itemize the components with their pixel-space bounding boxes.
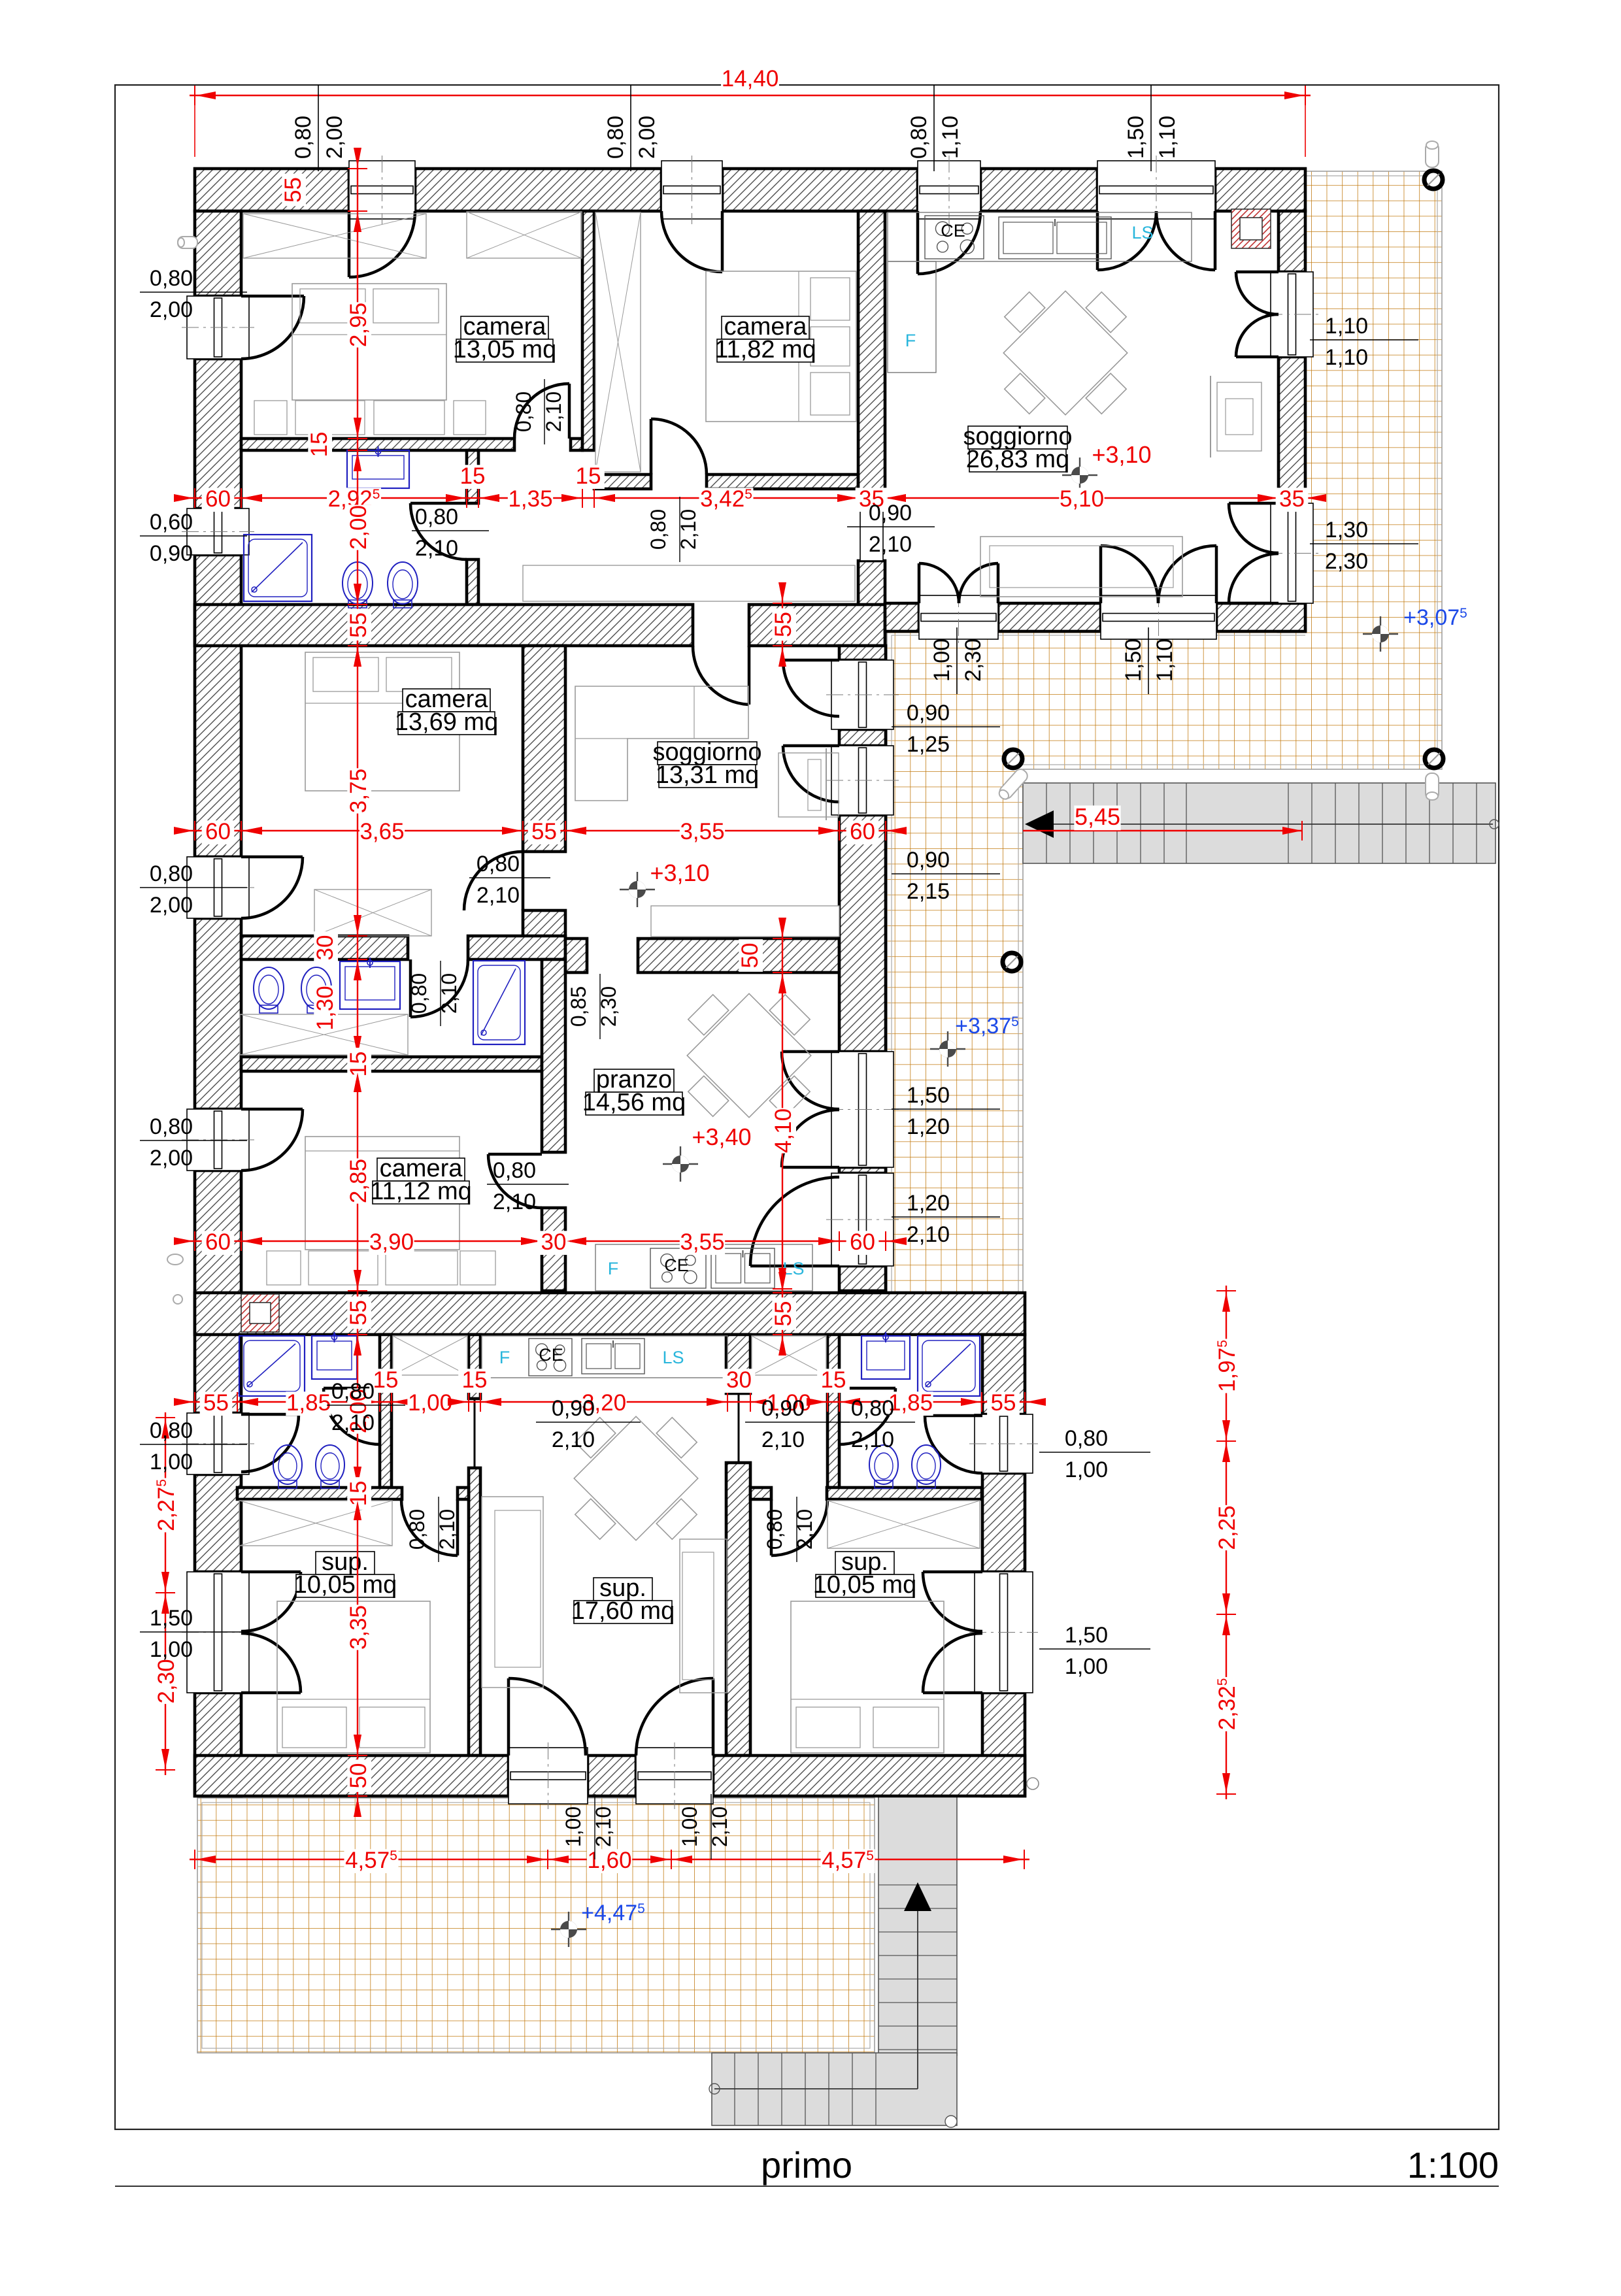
svg-text:0,85: 0,85 <box>567 986 590 1027</box>
svg-text:5,10: 5,10 <box>1060 486 1104 512</box>
svg-text:15: 15 <box>346 1481 371 1506</box>
svg-text:CE: CE <box>539 1345 563 1365</box>
svg-text:2,10: 2,10 <box>761 1427 805 1452</box>
svg-text:1,975: 1,975 <box>1214 1340 1240 1392</box>
svg-text:CE: CE <box>664 1256 689 1275</box>
svg-text:2,10: 2,10 <box>493 1190 536 1214</box>
svg-text:0,90: 0,90 <box>907 848 950 873</box>
svg-text:55: 55 <box>531 819 557 844</box>
svg-text:3,55: 3,55 <box>680 1229 724 1255</box>
svg-text:15: 15 <box>460 463 486 489</box>
svg-text:13,05 mq: 13,05 mq <box>453 336 556 363</box>
svg-text:60: 60 <box>205 1229 231 1255</box>
svg-text:30: 30 <box>726 1367 752 1393</box>
svg-text:0,80: 0,80 <box>150 1418 193 1443</box>
svg-text:60: 60 <box>850 1229 875 1255</box>
svg-text:15: 15 <box>373 1367 399 1393</box>
svg-text:3,75: 3,75 <box>346 769 371 813</box>
svg-text:55: 55 <box>346 612 371 638</box>
svg-text:55: 55 <box>771 612 796 637</box>
svg-text:1,50: 1,50 <box>1065 1623 1108 1648</box>
svg-text:2,00: 2,00 <box>322 116 347 159</box>
svg-text:1,10: 1,10 <box>1325 314 1368 339</box>
svg-text:35: 35 <box>1279 486 1305 512</box>
svg-text:1,85: 1,85 <box>286 1390 331 1416</box>
svg-text:1,00: 1,00 <box>561 1806 585 1847</box>
svg-text:F: F <box>905 331 916 350</box>
svg-text:1,25: 1,25 <box>907 732 950 757</box>
svg-text:0,80: 0,80 <box>512 391 535 432</box>
svg-text:0,80: 0,80 <box>407 973 431 1014</box>
svg-text:0,80: 0,80 <box>1065 1426 1108 1451</box>
svg-text:2,10: 2,10 <box>851 1427 894 1452</box>
svg-text:0,80: 0,80 <box>415 505 458 529</box>
svg-text:1,00: 1,00 <box>150 1450 193 1474</box>
svg-text:2,10: 2,10 <box>476 883 520 908</box>
svg-text:3,55: 3,55 <box>680 819 724 844</box>
svg-text:1,30: 1,30 <box>1325 518 1368 542</box>
svg-text:1,85: 1,85 <box>888 1390 933 1416</box>
svg-text:15: 15 <box>462 1367 488 1393</box>
svg-text:11,12 mq: 11,12 mq <box>370 1178 472 1205</box>
svg-text:3,65: 3,65 <box>359 819 404 844</box>
svg-text:+3,10: +3,10 <box>1092 441 1151 468</box>
svg-text:1,10: 1,10 <box>1152 639 1177 682</box>
svg-text:15: 15 <box>576 463 601 489</box>
svg-text:60: 60 <box>205 486 231 512</box>
svg-text:2,10: 2,10 <box>415 536 458 561</box>
svg-text:2,10: 2,10 <box>331 1410 375 1435</box>
svg-text:4,10: 4,10 <box>771 1108 796 1153</box>
svg-text:26,83 mq: 26,83 mq <box>966 446 1069 473</box>
svg-text:0,80: 0,80 <box>405 1509 429 1550</box>
svg-text:primo: primo <box>761 2144 852 2186</box>
svg-text:4,575: 4,575 <box>822 1848 874 1873</box>
svg-text:1,10: 1,10 <box>1325 345 1368 370</box>
svg-text:+3,40: +3,40 <box>692 1123 751 1150</box>
svg-text:0,90: 0,90 <box>869 501 912 525</box>
svg-text:0,90: 0,90 <box>907 701 950 725</box>
svg-text:0,90: 0,90 <box>552 1396 595 1421</box>
svg-text:0,80: 0,80 <box>603 116 628 159</box>
svg-text:3,90: 3,90 <box>369 1229 414 1255</box>
svg-text:0,80: 0,80 <box>907 116 931 159</box>
svg-text:10,05 mq: 10,05 mq <box>813 1571 916 1599</box>
svg-text:4,575: 4,575 <box>345 1848 397 1873</box>
svg-text:0,80: 0,80 <box>646 509 670 550</box>
svg-text:2,15: 2,15 <box>907 879 950 904</box>
svg-text:1:100: 1:100 <box>1407 2144 1499 2186</box>
svg-text:CE: CE <box>941 221 965 241</box>
svg-text:2,30: 2,30 <box>961 639 986 682</box>
svg-text:13,31 mq: 13,31 mq <box>656 761 759 789</box>
svg-text:2,00: 2,00 <box>346 505 371 550</box>
svg-text:2,10: 2,10 <box>907 1222 950 1247</box>
svg-text:+4,475: +4,475 <box>581 1901 645 1925</box>
svg-text:2,00: 2,00 <box>635 116 660 159</box>
svg-text:5,45: 5,45 <box>1075 803 1120 830</box>
svg-text:50: 50 <box>346 1763 371 1789</box>
svg-text:1,50: 1,50 <box>1124 116 1148 159</box>
svg-text:2,25: 2,25 <box>1214 1505 1240 1550</box>
svg-text:1,50: 1,50 <box>907 1083 950 1108</box>
svg-text:1,50: 1,50 <box>150 1606 193 1631</box>
svg-text:LS: LS <box>1131 223 1153 242</box>
svg-text:0,90: 0,90 <box>761 1396 805 1421</box>
svg-text:1,20: 1,20 <box>907 1191 950 1216</box>
svg-text:1,00: 1,00 <box>408 1390 452 1416</box>
svg-text:1,00: 1,00 <box>1065 1654 1108 1679</box>
svg-text:2,30: 2,30 <box>1325 549 1368 574</box>
svg-text:2,00: 2,00 <box>150 893 193 918</box>
svg-text:30: 30 <box>312 935 338 961</box>
svg-text:17,60 mq: 17,60 mq <box>571 1597 675 1625</box>
svg-text:3,35: 3,35 <box>346 1605 371 1650</box>
svg-text:1,00: 1,00 <box>929 639 954 682</box>
svg-text:0,60: 0,60 <box>150 510 193 535</box>
svg-text:15: 15 <box>307 432 332 458</box>
svg-text:2,85: 2,85 <box>346 1159 371 1203</box>
svg-text:2,275: 2,275 <box>154 1479 179 1531</box>
svg-text:2,95: 2,95 <box>346 303 371 347</box>
svg-text:3,425: 3,425 <box>700 486 752 512</box>
svg-text:F: F <box>608 1259 619 1278</box>
svg-text:0,80: 0,80 <box>150 861 193 886</box>
svg-text:30: 30 <box>541 1229 567 1255</box>
svg-text:1,00: 1,00 <box>150 1637 193 1662</box>
svg-text:0,80: 0,80 <box>331 1379 375 1404</box>
svg-text:10,05 mq: 10,05 mq <box>293 1571 397 1599</box>
svg-text:0,80: 0,80 <box>150 1114 193 1139</box>
svg-text:15: 15 <box>821 1367 846 1393</box>
svg-text:55: 55 <box>991 1390 1016 1416</box>
svg-text:55: 55 <box>771 1301 796 1327</box>
svg-text:1,30: 1,30 <box>312 986 338 1030</box>
svg-text:+3,375: +3,375 <box>955 1014 1019 1039</box>
svg-text:1,60: 1,60 <box>587 1848 631 1873</box>
svg-text:55: 55 <box>280 177 306 203</box>
svg-text:1,10: 1,10 <box>1155 116 1180 159</box>
svg-text:0,80: 0,80 <box>291 116 316 159</box>
svg-text:15: 15 <box>346 1052 371 1077</box>
svg-text:11,82 mq: 11,82 mq <box>714 336 816 363</box>
svg-text:55: 55 <box>346 1300 371 1325</box>
svg-text:60: 60 <box>205 819 231 844</box>
svg-text:2,10: 2,10 <box>552 1427 595 1452</box>
svg-text:0,80: 0,80 <box>493 1158 536 1183</box>
svg-text:2,30: 2,30 <box>154 1659 179 1703</box>
svg-text:LS: LS <box>662 1348 684 1367</box>
svg-text:1,10: 1,10 <box>938 116 963 159</box>
svg-text:14,56 mq: 14,56 mq <box>582 1089 686 1116</box>
svg-text:2,00: 2,00 <box>150 1146 193 1171</box>
svg-text:0,80: 0,80 <box>763 1509 786 1550</box>
svg-text:2,00: 2,00 <box>150 297 193 322</box>
svg-text:50: 50 <box>737 943 763 969</box>
svg-text:0,80: 0,80 <box>476 852 520 876</box>
svg-text:0,90: 0,90 <box>150 541 193 566</box>
svg-text:2,10: 2,10 <box>542 391 565 432</box>
svg-text:0,80: 0,80 <box>150 266 193 291</box>
svg-text:1,00: 1,00 <box>678 1806 701 1847</box>
svg-text:60: 60 <box>850 819 875 844</box>
svg-text:1,00: 1,00 <box>1065 1457 1108 1482</box>
svg-text:55: 55 <box>203 1390 229 1416</box>
svg-text:+3,10: +3,10 <box>650 859 709 886</box>
svg-text:2,325: 2,325 <box>1214 1678 1240 1731</box>
svg-text:1,35: 1,35 <box>508 486 552 512</box>
svg-text:1,50: 1,50 <box>1121 639 1146 682</box>
svg-text:13,69 mq: 13,69 mq <box>395 708 498 736</box>
svg-text:14,40: 14,40 <box>722 66 779 92</box>
svg-text:1,20: 1,20 <box>907 1114 950 1139</box>
svg-text:0,80: 0,80 <box>851 1396 894 1421</box>
svg-text:+3,075: +3,075 <box>1403 605 1467 630</box>
svg-text:2,10: 2,10 <box>869 532 912 557</box>
svg-text:F: F <box>499 1348 510 1367</box>
